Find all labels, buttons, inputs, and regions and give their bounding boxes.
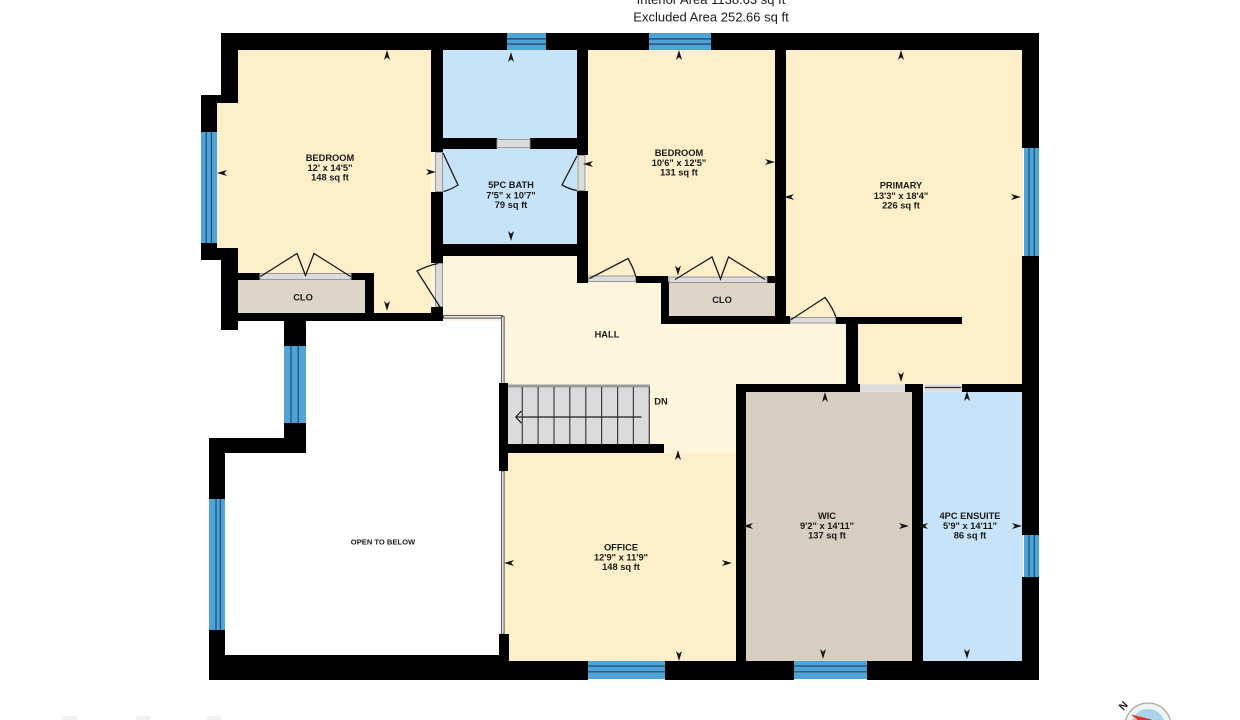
svg-text:86 sq ft: 86 sq ft (954, 531, 987, 541)
svg-text:Excluded Area 252.66 sq ft: Excluded Area 252.66 sq ft (633, 10, 789, 25)
svg-text:DN: DN (654, 397, 668, 407)
svg-text:12' x 14'5": 12' x 14'5" (307, 163, 352, 173)
svg-text:CLO: CLO (712, 295, 732, 305)
svg-text:148 sq ft: 148 sq ft (311, 173, 349, 183)
svg-text:131 sq ft: 131 sq ft (660, 168, 698, 178)
svg-text:BEDROOM: BEDROOM (655, 148, 704, 158)
svg-text:12'9" x 11'9": 12'9" x 11'9" (594, 552, 648, 562)
svg-text:N: N (1117, 699, 1131, 713)
svg-text:5'9" x 14'11": 5'9" x 14'11" (943, 521, 997, 531)
svg-text:Interior Area 1138.63 sq ft: Interior Area 1138.63 sq ft (637, 0, 786, 7)
svg-text:9'2" x 14'11": 9'2" x 14'11" (800, 521, 854, 531)
svg-text:13'3" x 18'4": 13'3" x 18'4" (874, 191, 929, 201)
svg-text:5PC BATH: 5PC BATH (488, 180, 534, 190)
svg-text:HALL: HALL (595, 330, 620, 340)
svg-text:OFFICE: OFFICE (604, 543, 638, 553)
svg-text:OPEN TO BELOW: OPEN TO BELOW (351, 538, 416, 547)
svg-text:137 sq ft: 137 sq ft (808, 531, 846, 541)
svg-text:WIC: WIC (818, 511, 836, 521)
svg-text:4PC ENSUITE: 4PC ENSUITE (940, 511, 1001, 521)
svg-text:7'5" x 10'7": 7'5" x 10'7" (486, 190, 535, 200)
svg-text:PRIMARY: PRIMARY (880, 181, 923, 191)
svg-text:148 sq ft: 148 sq ft (602, 562, 640, 572)
svg-text:79 sq ft: 79 sq ft (495, 200, 528, 210)
svg-text:BEDROOM: BEDROOM (306, 153, 355, 163)
svg-text:CLO: CLO (293, 293, 313, 303)
svg-text:10'6" x 12'5": 10'6" x 12'5" (652, 158, 707, 168)
svg-text:226 sq ft: 226 sq ft (882, 201, 920, 211)
